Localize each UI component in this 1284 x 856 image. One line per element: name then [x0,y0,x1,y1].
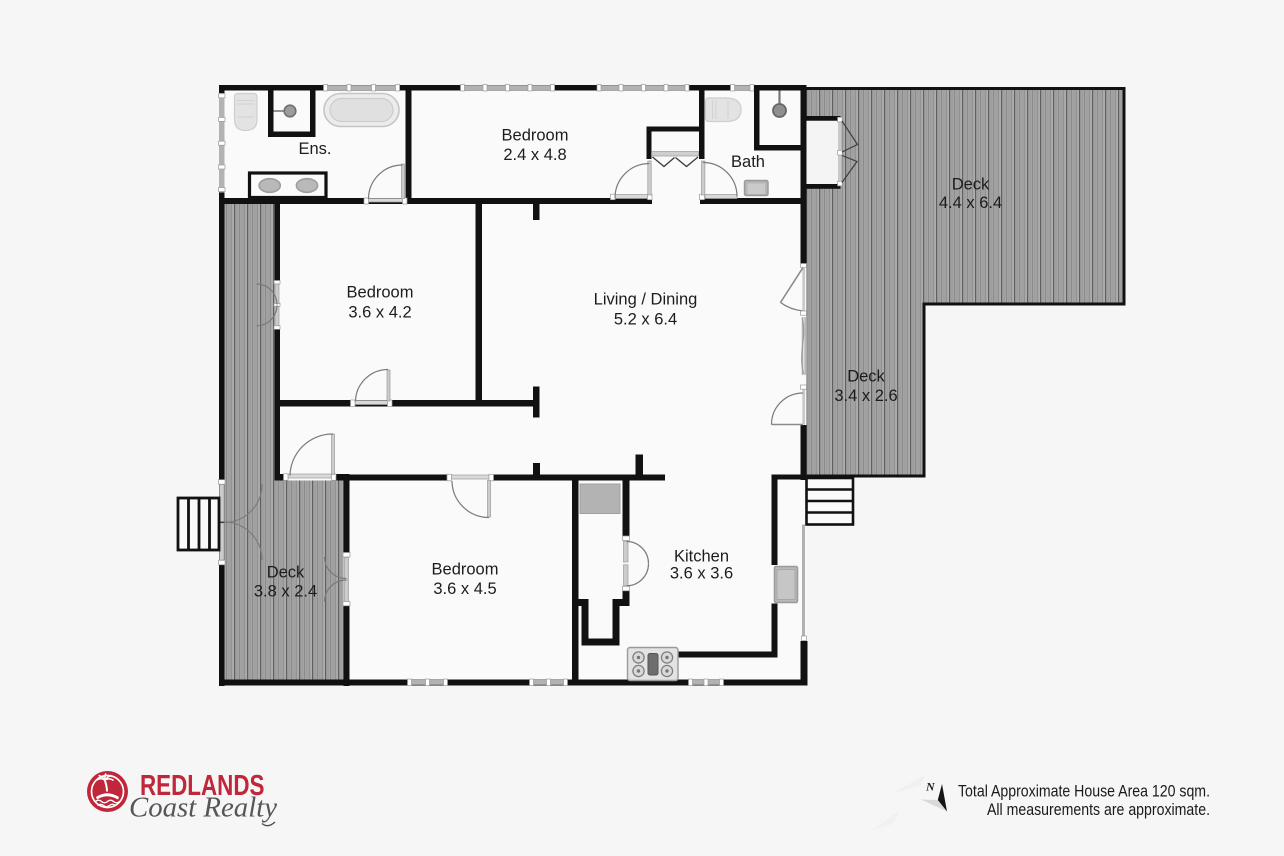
svg-text:Ens.: Ens. [298,140,331,158]
svg-text:3.8 x 2.4: 3.8 x 2.4 [254,583,317,601]
svg-text:2.4 x 4.8: 2.4 x 4.8 [503,146,566,164]
svg-text:Total Approximate House Area 1: Total Approximate House Area 120 sqm. [958,783,1210,801]
svg-text:3.6 x 4.5: 3.6 x 4.5 [433,580,496,598]
svg-text:3.4 x 2.6: 3.4 x 2.6 [834,387,897,405]
svg-text:Kitchen: Kitchen [674,548,729,566]
svg-text:Deck: Deck [267,564,305,582]
svg-text:N: N [925,780,936,794]
svg-text:Deck: Deck [847,368,885,386]
svg-text:3.6 x 4.2: 3.6 x 4.2 [348,304,411,322]
svg-text:Bedroom: Bedroom [502,127,569,145]
svg-text:Living / Dining: Living / Dining [594,291,698,309]
svg-text:Bath: Bath [731,153,765,171]
svg-text:Deck: Deck [952,176,990,194]
svg-text:3.6 x 3.6: 3.6 x 3.6 [670,565,733,583]
svg-text:Bedroom: Bedroom [347,284,414,302]
svg-text:Coast Realty: Coast Realty [129,793,278,824]
svg-text:All measurements are approxima: All measurements are approximate. [987,801,1210,819]
svg-text:5.2 x 6.4: 5.2 x 6.4 [614,311,677,329]
svg-text:Bedroom: Bedroom [432,561,499,579]
svg-text:4.4 x 6.4: 4.4 x 6.4 [939,194,1002,212]
